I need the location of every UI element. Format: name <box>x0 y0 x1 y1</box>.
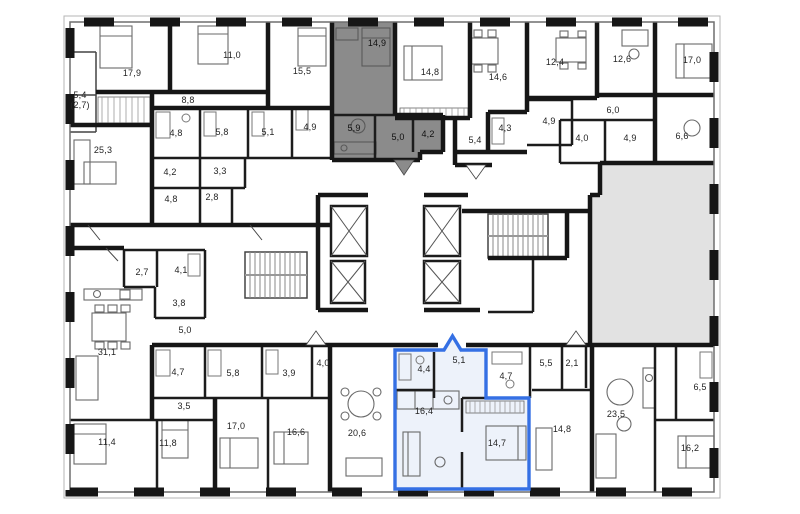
shaded-apartment-fill <box>332 22 443 160</box>
door-wedge <box>394 160 414 175</box>
door-leaf <box>88 225 262 261</box>
staircase-icon <box>488 214 548 258</box>
door-wedge <box>306 331 326 345</box>
door-wedge <box>566 331 586 345</box>
floor-plan-drawing <box>0 0 800 514</box>
door-wedge <box>466 165 486 179</box>
floor-plan: 17,95,4 (2,7)8,811,015,525,34,85,85,14,9… <box>0 0 800 514</box>
vacant-area-fill <box>590 163 714 345</box>
elevator-shaft <box>331 206 460 303</box>
staircase-icon <box>245 252 307 298</box>
